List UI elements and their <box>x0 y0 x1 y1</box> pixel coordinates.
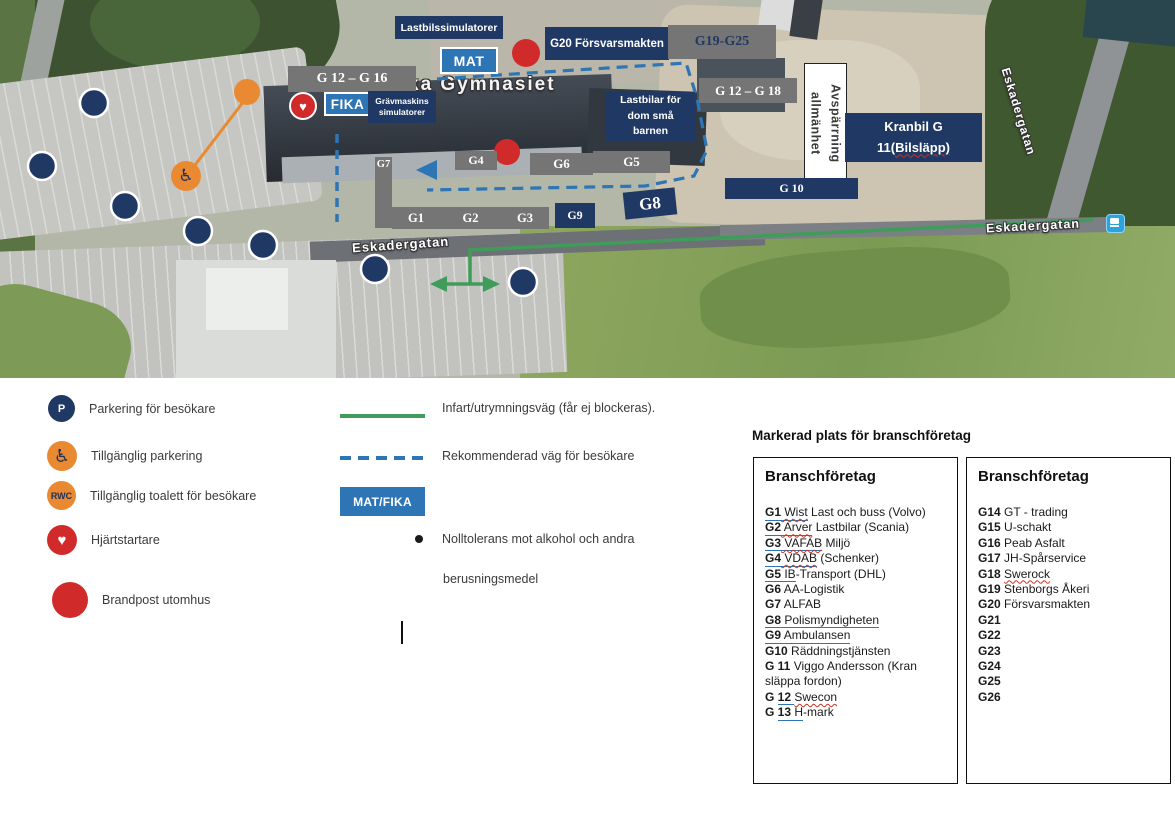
company-item: G20 Försvarsmakten <box>978 597 1159 612</box>
wheelchair-icon: ♿ <box>47 441 77 471</box>
legend-label: Hjärtstartare <box>91 533 160 547</box>
visitor-parking-dot <box>249 231 277 259</box>
map-label-gravmaskins-simulatorer: Grävmaskins simulatorer <box>368 91 436 123</box>
visitor-parking-dot <box>28 152 56 180</box>
green-route-legend-line <box>340 414 425 418</box>
kranbil-line2: 11(Bilsläpp) <box>877 138 950 158</box>
company-item: G25 <box>978 674 1159 689</box>
map-label-g12-g16: G 12 – G 16 <box>288 66 416 92</box>
company-item: G21 <box>978 613 1159 628</box>
map-label-g20-forsvarsmakten: G20 Försvarsmakten <box>545 27 669 60</box>
heart-icon: ♥ <box>47 525 77 555</box>
legend-row-parkering: P Parkering för besökare <box>48 395 215 422</box>
company-list: G14 GT - tradingG15 U-schaktG16 Peab Asf… <box>978 505 1159 705</box>
fire-hydrant-marker <box>512 39 540 67</box>
blue-dashed-legend-line <box>340 456 428 460</box>
map-label-g19-g25: G19-G25 <box>668 25 776 59</box>
accessible-parking-marker <box>234 79 260 105</box>
company-box-title: Branschföretag <box>765 468 946 485</box>
green-arrowhead-right <box>483 276 500 292</box>
company-item: G3 VAFAB Miljö <box>765 536 946 551</box>
company-item: G7 ALFAB <box>765 597 946 612</box>
company-item: G23 <box>978 644 1159 659</box>
direction-triangle-icon <box>416 160 437 180</box>
map-label-avsparrning-allmanhet: Avspärrning allmänhet <box>804 63 847 184</box>
map-label-g8: G8 <box>623 187 678 219</box>
legend-row-brandpost: Brandpost utomhus <box>52 582 210 618</box>
map-label-g5: G5 <box>593 151 670 173</box>
company-item: G14 GT - trading <box>978 505 1159 520</box>
legend-row-hjartstartare: ♥ Hjärtstartare <box>47 525 160 555</box>
companies-section-title: Markerad plats för branschföretag <box>752 428 971 443</box>
company-box-1: Branschföretag G1 Wist Last och buss (Vo… <box>753 457 958 784</box>
map-label-g12-g18: G 12 – G 18 <box>699 78 797 103</box>
bus-stop-icon <box>1106 214 1125 233</box>
company-item: G5 IB-Transport (DHL) <box>765 567 946 582</box>
map-label-lastbilssimulatorer: Lastbilssimulatorer <box>395 16 503 39</box>
legend-label: Tillgänglig parkering <box>91 449 202 463</box>
fire-hydrant-marker <box>494 139 520 165</box>
company-item: G24 <box>978 659 1159 674</box>
company-item: G22 <box>978 628 1159 643</box>
company-item: G6 AA-Logistik <box>765 582 946 597</box>
company-box-title: Branschföretag <box>978 468 1159 485</box>
legend-label-infart: Infart/utrymningsväg (får ej blockeras). <box>442 401 655 415</box>
company-item: G18 Swerock <box>978 567 1159 582</box>
company-item: G4 VDAB (Schenker) <box>765 551 946 566</box>
map-label-lastbilar-for-barnen: Lastbilar för dom små barnen <box>606 92 695 141</box>
map-label-g2: G2 <box>463 211 479 226</box>
map-label-g1: G1 <box>408 211 424 226</box>
company-item: G 12 Swecon <box>765 690 946 705</box>
map-label-fika: FIKA <box>324 92 371 116</box>
company-item: G8 Polismyndigheten <box>765 613 946 628</box>
map-label-g6: G6 <box>530 153 593 175</box>
accessible-parking-wheelchair-icon: ♿ <box>171 161 201 191</box>
event-site-map-page: ka Gymnasiet Eskadergatan Eskadergatan E… <box>0 0 1175 819</box>
map-label-g9: G9 <box>555 203 595 228</box>
company-item: G26 <box>978 690 1159 705</box>
company-item: G 13 H-mark <box>765 705 946 720</box>
company-item: G16 Peab Asfalt <box>978 536 1159 551</box>
map-label-g7: G7 <box>375 157 392 228</box>
visitor-parking-dot <box>80 89 108 117</box>
legend-row-tillganglig-toalett: RWC Tillgänglig toalett för besökare <box>47 481 256 510</box>
legend-label-rekommenderad: Rekommenderad väg för besökare <box>442 449 634 463</box>
company-box-2: Branschföretag G14 GT - tradingG15 U-sch… <box>966 457 1171 784</box>
company-item: G1 Wist Last och buss (Volvo) <box>765 505 946 520</box>
legend-label-nolltolerans: Nolltolerans mot alkohol och andra <box>442 532 634 546</box>
rwc-toilet-icon: RWC <box>47 481 76 510</box>
map-label-kranbil-g11: Kranbil G 11(Bilsläpp) <box>845 113 982 162</box>
fire-hydrant-icon <box>52 582 88 618</box>
accessible-parking-connector <box>192 97 247 169</box>
legend-label: Parkering för besökare <box>89 402 215 416</box>
company-item: G9 Ambulansen <box>765 628 946 643</box>
defibrillator-heart-icon: ♥ <box>289 92 317 120</box>
legend-row-tillganglig-parkering: ♿ Tillgänglig parkering <box>47 441 202 471</box>
aerial-map: ka Gymnasiet Eskadergatan Eskadergatan E… <box>0 0 1175 378</box>
visitor-parking-dot <box>361 255 389 283</box>
parking-p-icon: P <box>48 395 75 422</box>
text-cursor <box>401 621 403 644</box>
map-label-g10: G 10 <box>725 178 858 199</box>
company-item: G17 JH-Spårservice <box>978 551 1159 566</box>
visitor-parking-dot <box>509 268 537 296</box>
company-item: G15 U-schakt <box>978 520 1159 535</box>
visitor-parking-dot <box>184 217 212 245</box>
map-label-mat: MAT <box>440 47 498 74</box>
visitor-parking-dot <box>111 192 139 220</box>
legend-label: Tillgänglig toalett för besökare <box>90 489 256 503</box>
company-item: G2 Arver Lastbilar (Scania) <box>765 520 946 535</box>
green-arrowhead-left <box>430 276 447 292</box>
kranbil-line1: Kranbil G <box>884 117 943 137</box>
map-label-g4: G4 <box>455 151 497 170</box>
mat-fika-legend-box: MAT/FIKA <box>340 487 425 516</box>
map-label-g3: G3 <box>517 211 533 226</box>
bullet-icon <box>415 535 423 543</box>
legend-label: Brandpost utomhus <box>102 593 210 607</box>
company-item: G19 Stenborgs Åkeri <box>978 582 1159 597</box>
company-list: G1 Wist Last och buss (Volvo)G2 Arver La… <box>765 505 946 721</box>
legend-label-nolltolerans-2: berusningsmedel <box>443 572 538 586</box>
company-item: G10 Räddningstjänsten <box>765 644 946 659</box>
map-label-g1-g2-g3: G1 G2 G3 <box>392 207 549 229</box>
company-item: G 11 Viggo Andersson (Kran släppa fordon… <box>765 659 946 690</box>
